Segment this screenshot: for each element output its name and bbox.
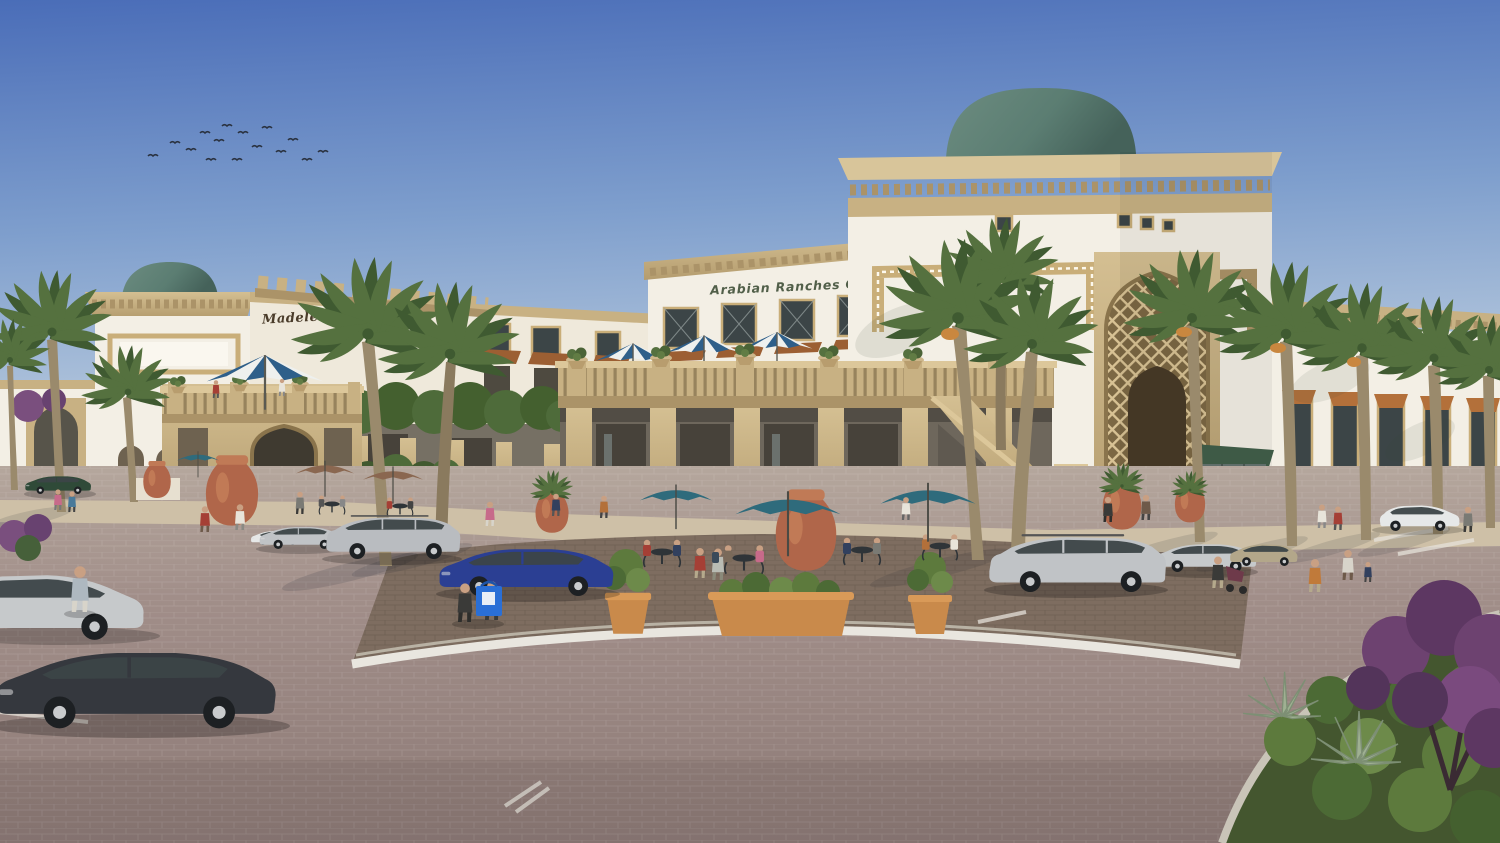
architectural-rendering: Madeleine Arabian Ranches Café	[0, 0, 1500, 843]
scene-svg: Madeleine Arabian Ranches Café	[0, 0, 1500, 843]
terrace-balustrade	[558, 366, 1054, 396]
shopping-bag	[476, 582, 502, 616]
trough-planter	[708, 572, 854, 636]
